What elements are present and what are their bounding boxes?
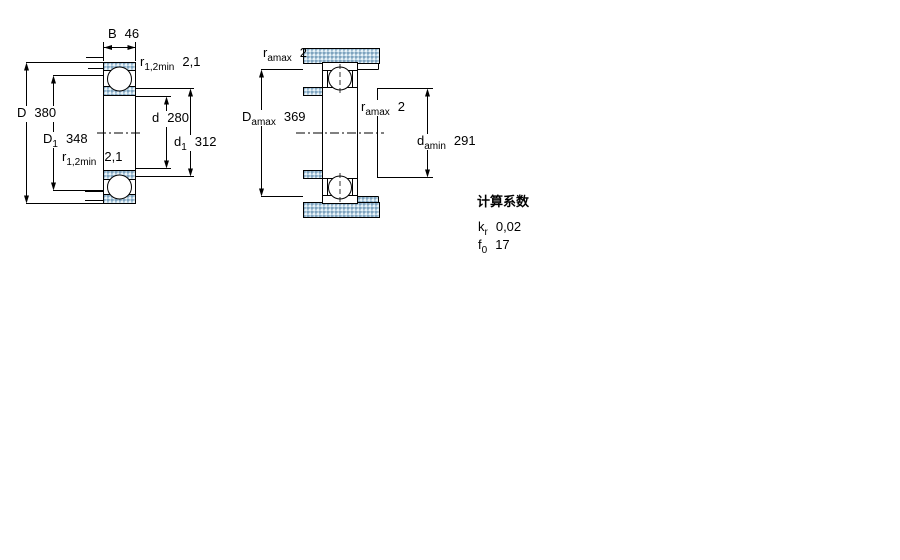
drawing-linework: [0, 0, 900, 560]
dim-shaft-abutment-da: damin291: [416, 134, 477, 150]
dim-outer-diameter-D: D380: [16, 106, 57, 122]
factor-f0: f017: [478, 238, 510, 254]
factor-kr: kr0,02: [478, 220, 521, 236]
dim-fillet-ra-top: ramax2: [263, 46, 307, 62]
dim-chamfer-r-top: r1,2min2,1: [140, 55, 200, 71]
dim-recess-diameter-D1: D1348: [42, 132, 89, 148]
dim-width-B: B46: [108, 27, 139, 43]
dim-housing-abutment-Da: Damax369: [241, 110, 307, 126]
dim-recess-diameter-d1: d1312: [173, 135, 218, 151]
dimension-arrowheads: [24, 45, 430, 204]
calculation-factors-title: 计算系数: [477, 195, 529, 209]
dim-fillet-ra-mid: ramax2: [360, 100, 406, 116]
bearing-dimension-figure: B46 r1,2min2,1 D380 D1348 r1,2min2,1 d28…: [0, 0, 900, 560]
dim-chamfer-r-bottom: r1,2min2,1: [62, 150, 122, 166]
dim-bore-diameter-d: d280: [151, 111, 190, 127]
